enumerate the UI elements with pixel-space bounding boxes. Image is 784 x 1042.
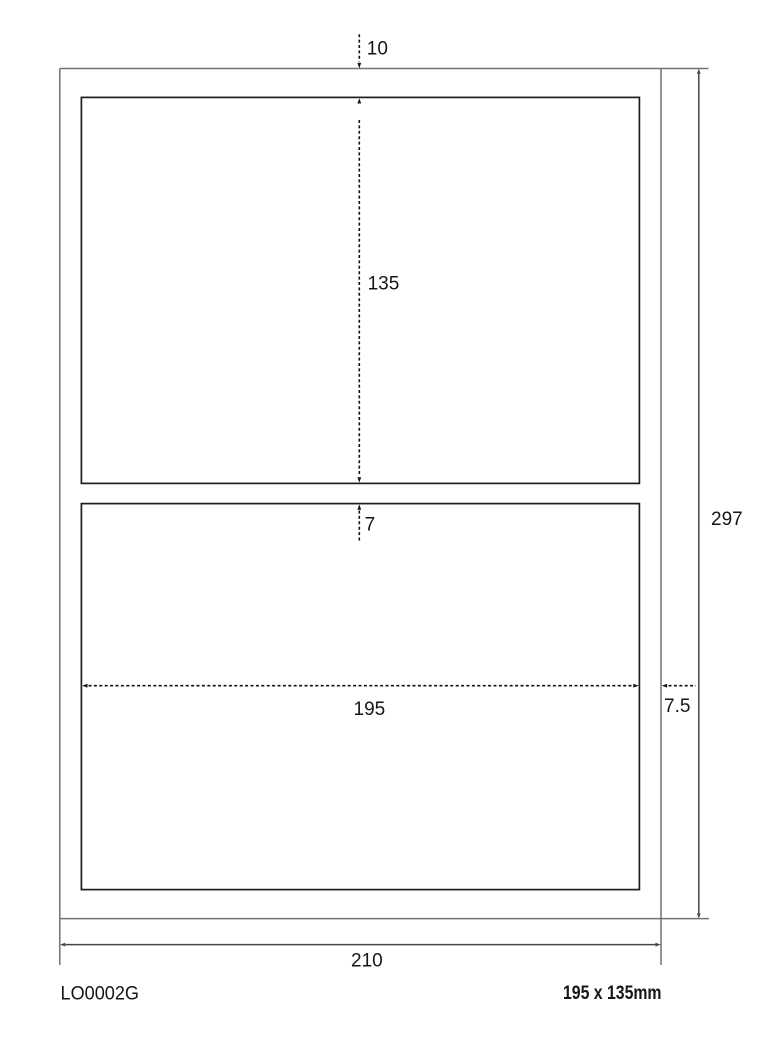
- svg-text:135: 135: [368, 274, 400, 295]
- svg-text:297: 297: [711, 509, 743, 530]
- svg-text:7.5: 7.5: [664, 696, 690, 717]
- svg-text:10: 10: [367, 39, 388, 60]
- svg-text:195 x 135mm: 195 x 135mm: [563, 983, 662, 1004]
- svg-text:LO0002G: LO0002G: [61, 984, 140, 1005]
- svg-text:195: 195: [354, 699, 386, 720]
- svg-text:210: 210: [351, 951, 383, 972]
- svg-text:7: 7: [365, 514, 376, 535]
